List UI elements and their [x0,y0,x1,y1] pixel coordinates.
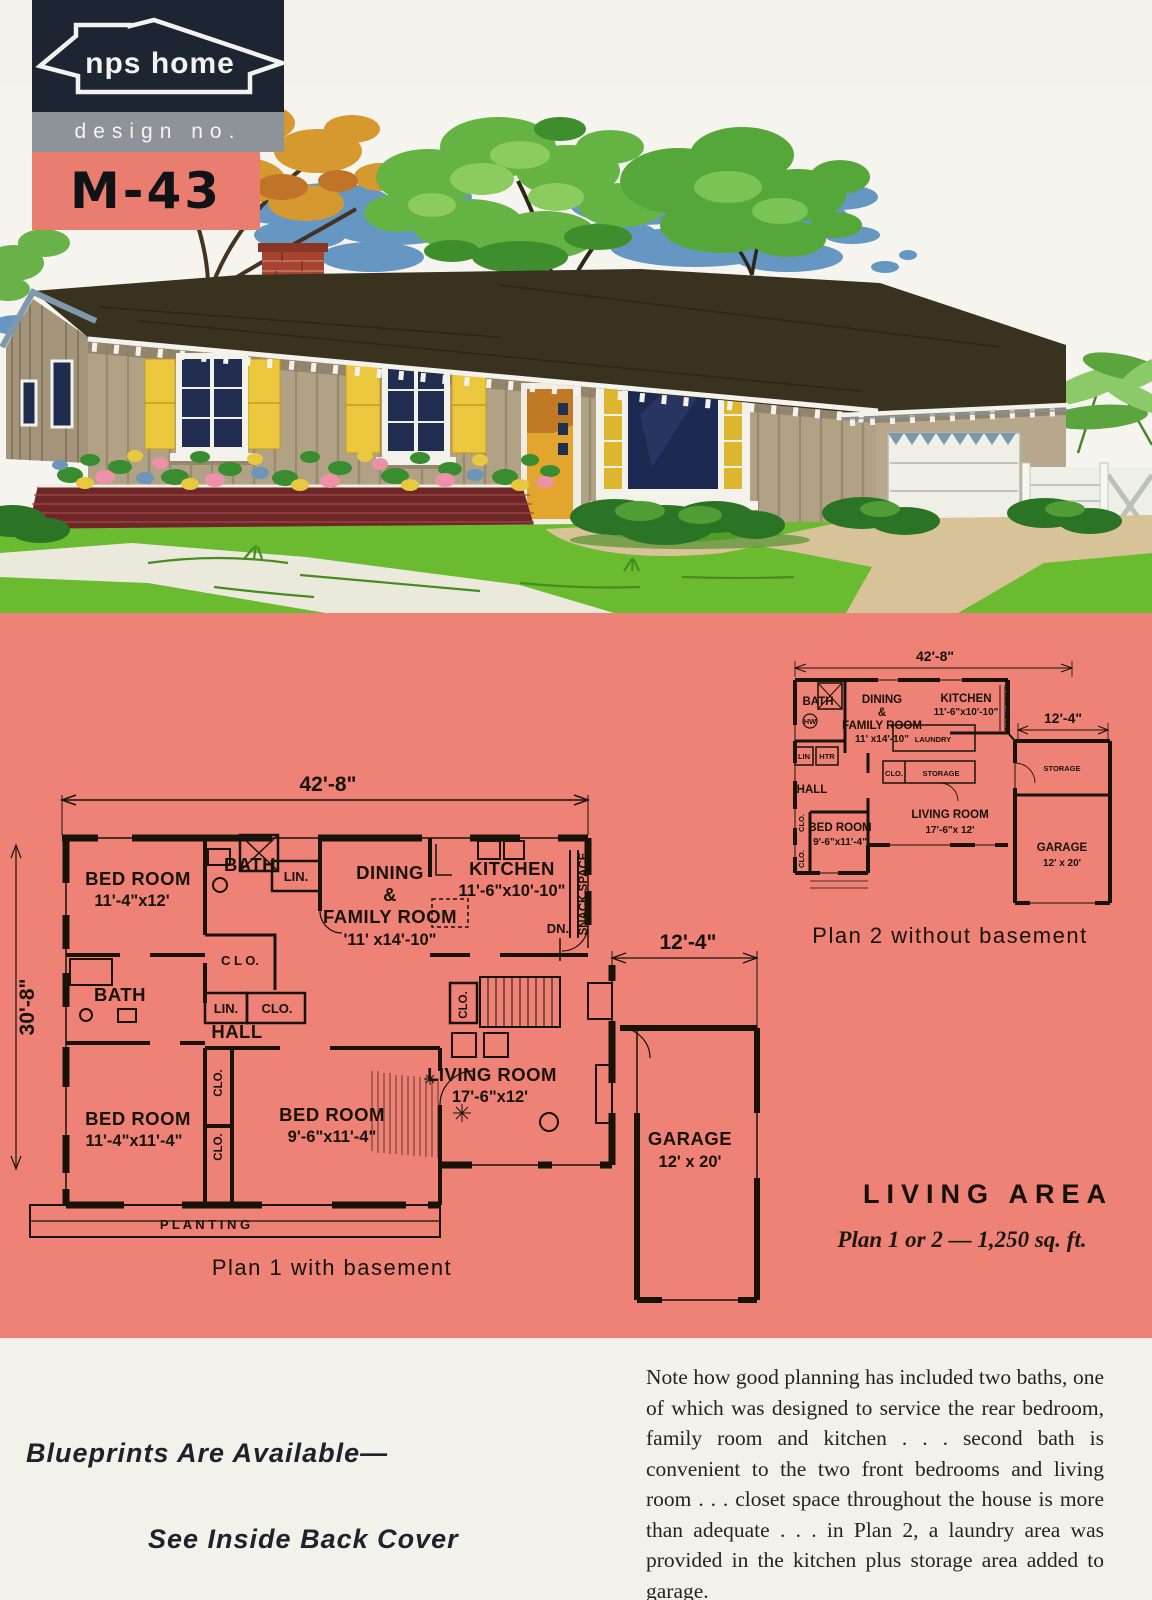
svg-text:17'-6"x 12': 17'-6"x 12' [926,825,975,836]
svg-text:BED ROOM: BED ROOM [85,1108,191,1129]
shutter [145,359,175,449]
svg-text:HW: HW [804,717,817,726]
svg-text:C L O.: C L O. [221,953,259,968]
svg-text:LAUNDRY: LAUNDRY [915,735,951,744]
svg-text:CLO.: CLO. [458,991,470,1018]
svg-text:KITCHEN: KITCHEN [940,693,991,705]
svg-text:STORAGE: STORAGE [923,769,960,778]
svg-text:BATH: BATH [94,984,146,1005]
svg-text:BED ROOM: BED ROOM [279,1104,385,1125]
logo-design-label-band: design no. [32,112,284,152]
logo-brand-box: nps home [32,0,284,112]
catalog-page: nps home design no. M-43 [0,0,1152,1600]
svg-text:LIN: LIN [798,752,810,761]
description-note: Note how good planning has included two … [646,1362,1104,1600]
svg-text:LIVING ROOM: LIVING ROOM [911,809,988,821]
svg-text:BATH: BATH [802,696,833,708]
svg-text:DN.: DN. [547,921,569,936]
svg-text:BED ROOM: BED ROOM [85,868,191,889]
svg-text:GARAGE: GARAGE [648,1128,732,1149]
gable-window [22,381,36,425]
nps-home-logo: nps home design no. M-43 [32,0,284,230]
svg-text:FAMILY ROOM: FAMILY ROOM [323,906,457,927]
svg-text:LIVING ROOM: LIVING ROOM [427,1064,557,1085]
svg-text:P L A N T I N G: P L A N T I N G [160,1217,250,1232]
svg-text:BED ROOM: BED ROOM [808,822,871,834]
design-number: M-43 [70,162,222,220]
svg-text:11' x14'-10": 11' x14'-10" [855,734,909,745]
blueprints-line-1: Blueprints Are Available— [26,1438,388,1469]
svg-text:12' x 20': 12' x 20' [1043,858,1081,869]
svg-text:CLO.: CLO. [213,1069,225,1096]
svg-text:12'-4": 12'-4" [660,931,717,954]
front-window-1 [145,353,280,465]
svg-text:LIN.: LIN. [214,1001,239,1016]
svg-text:'11' x14'-10": '11' x14'-10" [344,931,437,949]
svg-text:HTR: HTR [819,752,835,761]
shutter [346,359,380,453]
svg-text:42'-8": 42'-8" [916,648,954,664]
svg-text:CLO.: CLO. [213,1133,225,1160]
svg-text:9'-6"x11'-4": 9'-6"x11'-4" [813,837,867,848]
plan-2-caption: Plan 2 without basement [812,923,1087,948]
svg-text:SNACK SPACE: SNACK SPACE [578,852,590,935]
logo-design-number-band: M-43 [32,152,260,230]
floor-plans: 42'-8" 30'-8" 12'-4" BED ROOM 11'-4"x12'… [0,613,1152,1338]
svg-text:9'-6"x11'-4": 9'-6"x11'-4" [288,1128,377,1146]
svg-text:FAMILY ROOM: FAMILY ROOM [842,720,922,732]
living-area-block: LIVING AREA Plan 1 or 2 — 1,250 sq. ft. [836,1179,1113,1252]
design-label: design no. [75,120,242,144]
svg-text:&: & [878,707,886,719]
svg-text:DINING: DINING [862,694,902,706]
gable-window [52,361,72,427]
svg-text:12'-4": 12'-4" [1044,710,1082,726]
svg-text:CLO.: CLO. [797,814,806,832]
svg-text:CLO.: CLO. [797,850,806,868]
floor-plan-panel: 42'-8" 30'-8" 12'-4" BED ROOM 11'-4"x12'… [0,613,1152,1338]
svg-text:30'-8": 30'-8" [16,979,39,1036]
svg-text:LIN.: LIN. [284,869,309,884]
svg-text:12' x 20': 12' x 20' [659,1153,722,1171]
svg-text:17'-6"x12': 17'-6"x12' [452,1088,528,1106]
svg-text:&: & [383,884,397,905]
svg-text:BATH: BATH [224,854,276,875]
shutter [248,359,280,449]
brand-name: nps home [85,47,235,80]
svg-text:CLO.: CLO. [261,1001,292,1016]
svg-text:GARAGE: GARAGE [1037,842,1088,854]
svg-text:KITCHEN: KITCHEN [469,858,555,879]
living-area-subtitle: Plan 1 or 2 — 1,250 sq. ft. [836,1227,1086,1252]
living-area-title: LIVING AREA [863,1179,1113,1209]
svg-text:SNACK SPACE: SNACK SPACE [1003,681,1012,735]
svg-text:11'-6"x10'-10": 11'-6"x10'-10" [459,882,566,900]
svg-text:HALL: HALL [797,784,828,796]
svg-text:11'-6"x10'-10": 11'-6"x10'-10" [934,707,999,718]
plan-1-caption: Plan 1 with basement [212,1255,452,1280]
svg-text:CLO.: CLO. [885,769,903,778]
svg-text:STORAGE: STORAGE [1044,764,1081,773]
svg-text:DINING: DINING [356,862,424,883]
blueprints-line-2: See Inside Back Cover [148,1524,459,1555]
svg-text:42'-8": 42'-8" [300,773,357,796]
svg-text:HALL: HALL [211,1021,262,1042]
svg-text:11'-4"x12': 11'-4"x12' [94,892,169,910]
svg-text:11'-4"x11'-4": 11'-4"x11'-4" [86,1132,183,1150]
